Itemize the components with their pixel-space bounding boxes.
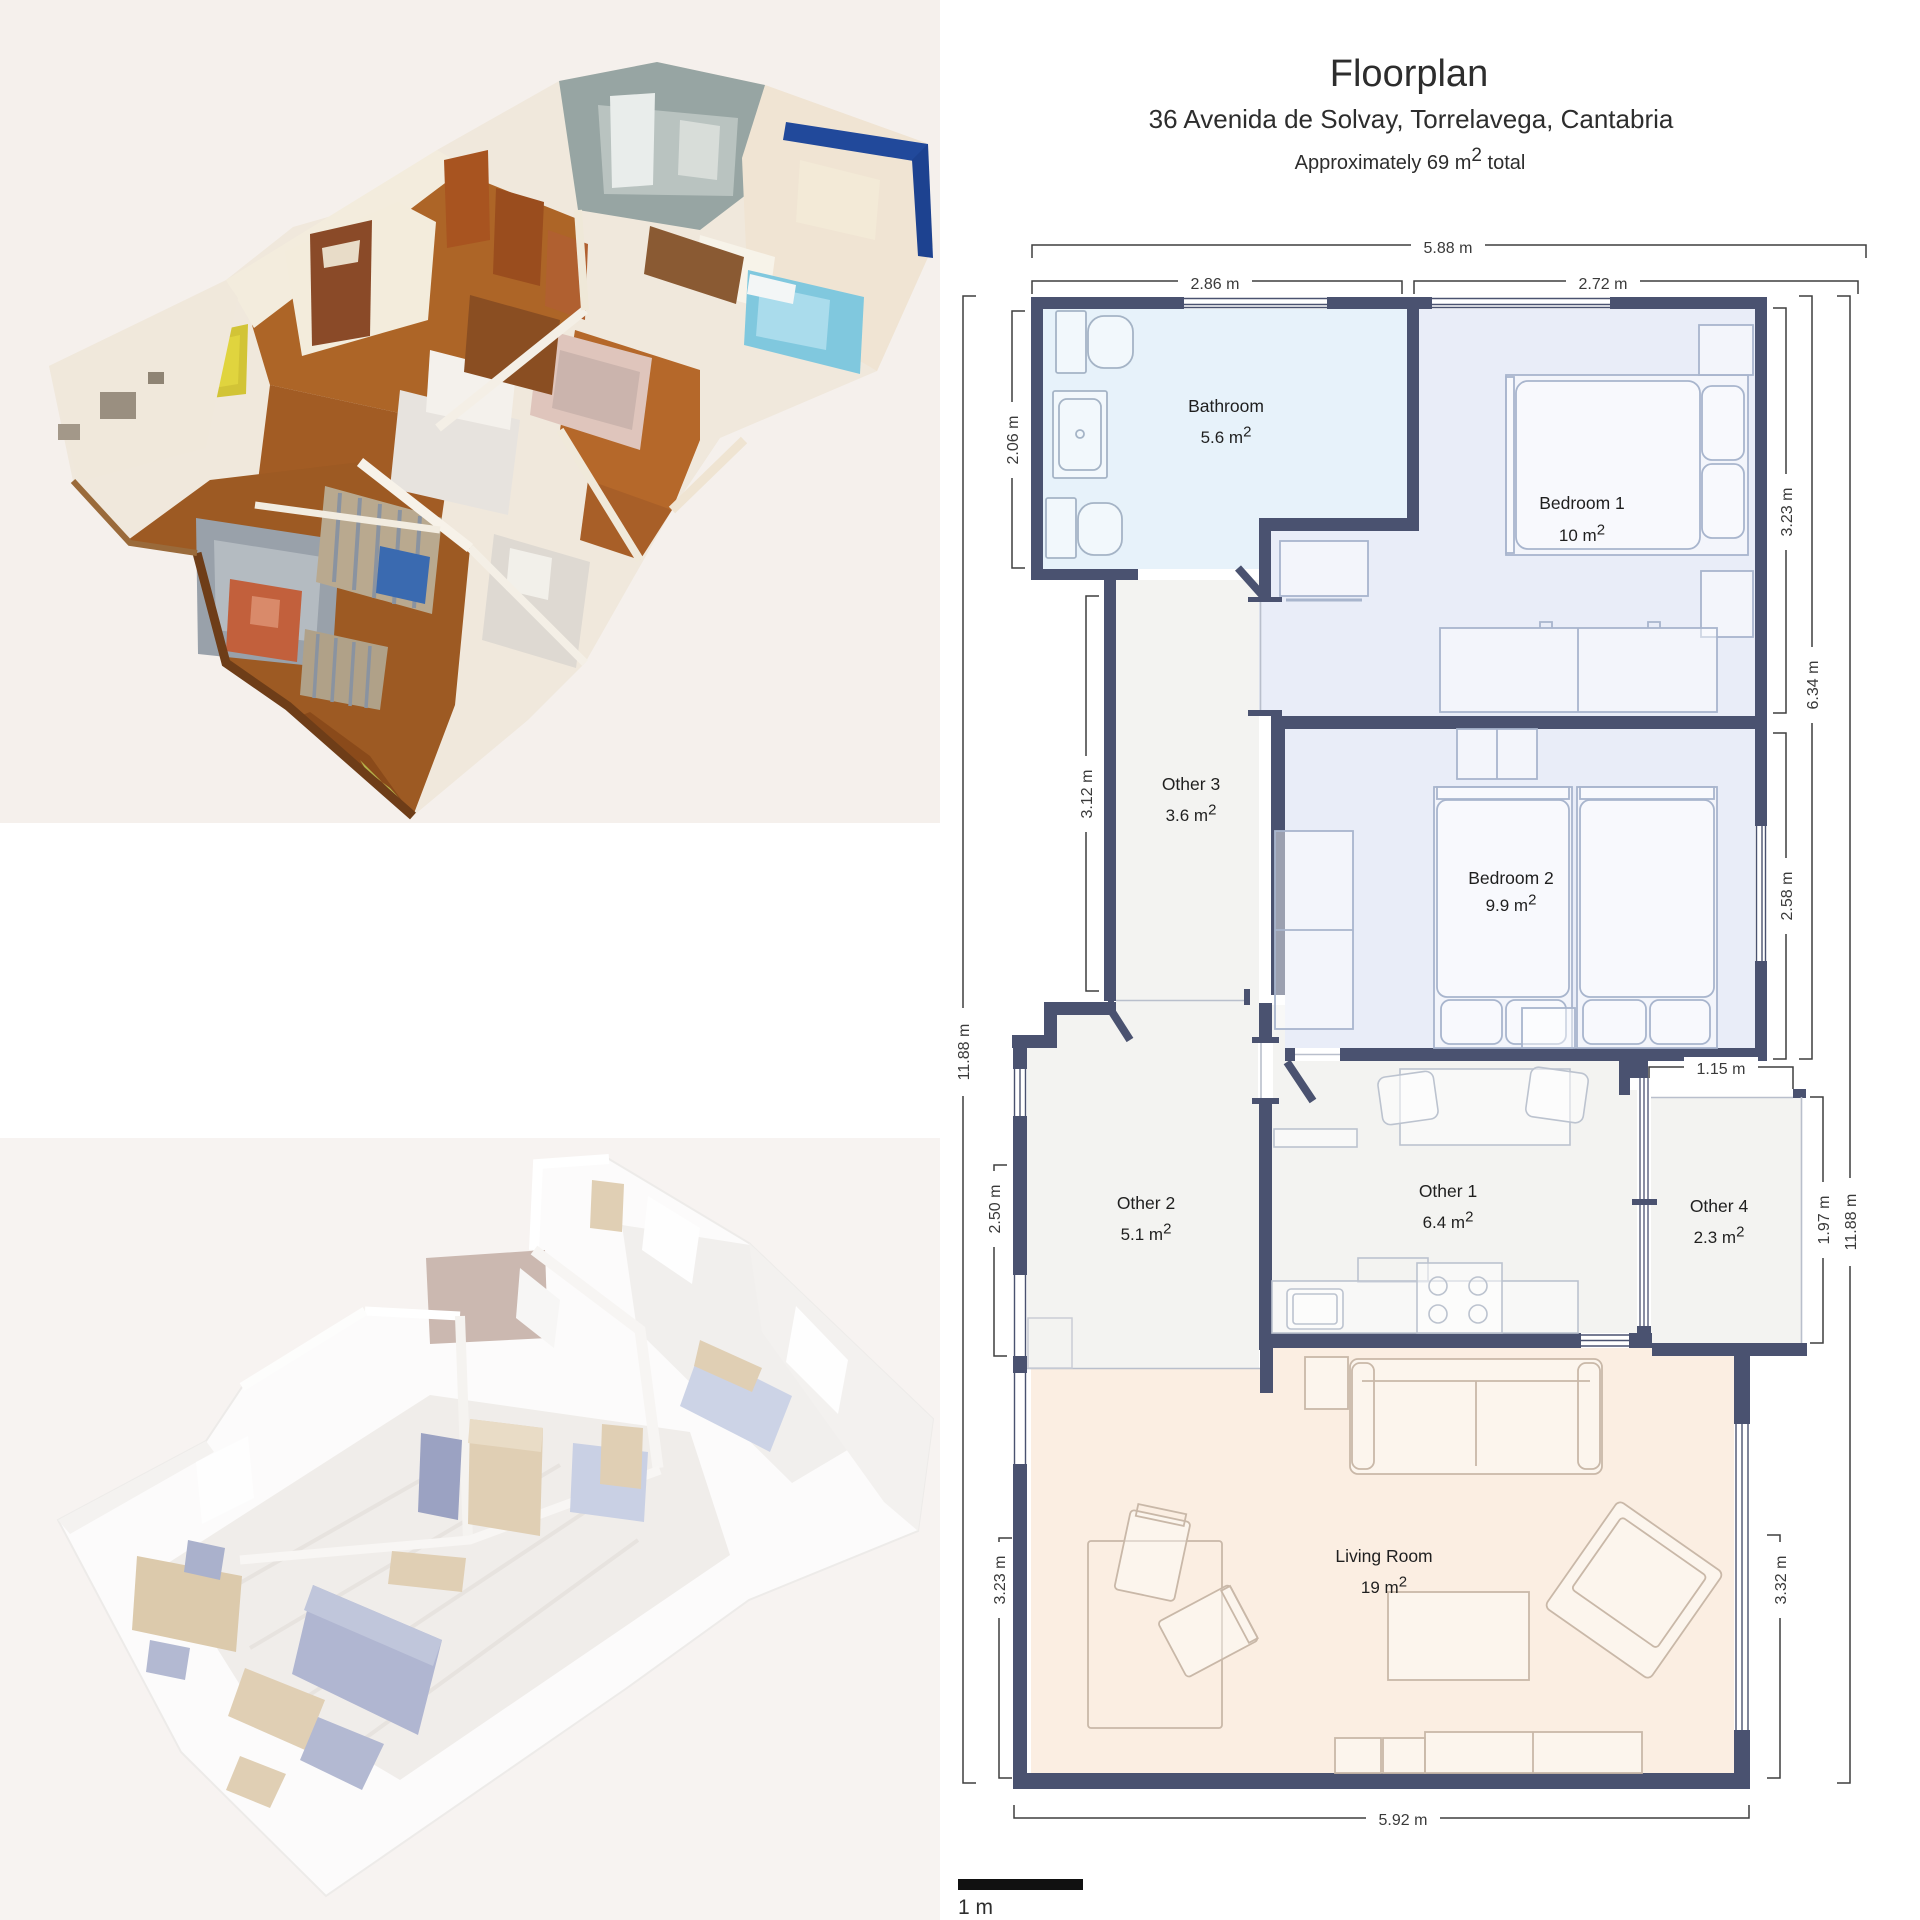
svg-text:3.23 m: 3.23 m <box>1779 488 1796 537</box>
svg-text:1.15 m: 1.15 m <box>1697 1061 1746 1078</box>
svg-text:Bedroom 1: Bedroom 1 <box>1539 493 1625 513</box>
svg-text:2.50 m: 2.50 m <box>987 1185 1004 1234</box>
svg-text:2.86 m: 2.86 m <box>1191 276 1240 293</box>
svg-text:2.72 m: 2.72 m <box>1579 276 1628 293</box>
svg-text:Other 3: Other 3 <box>1162 774 1220 794</box>
svg-text:11.88 m: 11.88 m <box>1843 1194 1860 1251</box>
svg-text:Other 4: Other 4 <box>1690 1196 1749 1216</box>
svg-text:Other 2: Other 2 <box>1117 1193 1175 1213</box>
svg-text:1.97 m: 1.97 m <box>1816 1196 1833 1245</box>
svg-text:Floorplan: Floorplan <box>1330 53 1488 95</box>
svg-text:5.88 m: 5.88 m <box>1424 240 1473 257</box>
svg-text:Other 1: Other 1 <box>1419 1181 1477 1201</box>
svg-text:6.34 m: 6.34 m <box>1805 661 1822 710</box>
svg-text:2.06 m: 2.06 m <box>1005 416 1022 465</box>
svg-text:Bedroom 2: Bedroom 2 <box>1468 868 1554 888</box>
svg-text:Living Room: Living Room <box>1335 1546 1432 1566</box>
svg-text:2.58 m: 2.58 m <box>1779 872 1796 921</box>
svg-text:36 Avenida de Solvay, Torrelav: 36 Avenida de Solvay, Torrelavega, Canta… <box>1149 104 1674 134</box>
svg-text:3.23 m: 3.23 m <box>992 1556 1009 1605</box>
svg-text:Bathroom: Bathroom <box>1188 396 1264 416</box>
svg-text:11.88 m: 11.88 m <box>956 1024 973 1081</box>
svg-text:5.92 m: 5.92 m <box>1379 1812 1428 1829</box>
svg-text:3.12 m: 3.12 m <box>1079 770 1096 819</box>
svg-text:3.32 m: 3.32 m <box>1773 1556 1790 1605</box>
svg-text:1 m: 1 m <box>958 1896 993 1919</box>
